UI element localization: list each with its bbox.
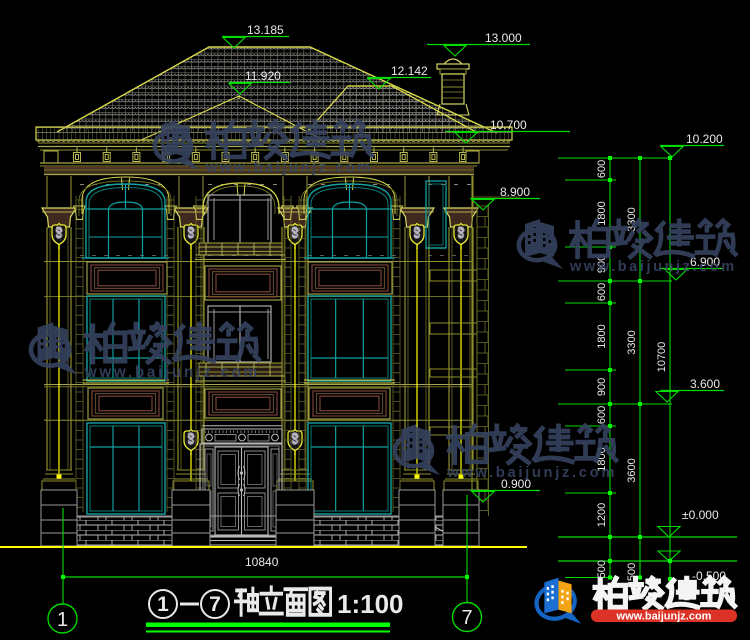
svg-text:13.185: 13.185: [247, 23, 284, 37]
svg-text:3600: 3600: [626, 458, 638, 482]
svg-text:www.baijunjz.com: www.baijunjz.com: [446, 465, 617, 481]
svg-text:www.baijunjz.com: www.baijunjz.com: [205, 160, 373, 176]
svg-text:1200: 1200: [596, 503, 608, 527]
svg-text:10.200: 10.200: [686, 132, 723, 146]
svg-text:10.700: 10.700: [490, 118, 527, 132]
svg-text:www.baijunjz.com: www.baijunjz.com: [616, 611, 712, 623]
svg-text:7: 7: [461, 607, 472, 629]
svg-text:12.142: 12.142: [391, 64, 428, 78]
svg-text:600: 600: [596, 406, 608, 424]
svg-text:1: 1: [157, 593, 169, 616]
svg-text:3300: 3300: [626, 330, 638, 354]
svg-text:600: 600: [596, 283, 608, 301]
svg-text:www.baijunjz.com: www.baijunjz.com: [84, 364, 260, 381]
svg-text:10700: 10700: [656, 342, 668, 373]
svg-text:1800: 1800: [596, 324, 608, 348]
svg-text:7: 7: [209, 593, 221, 616]
svg-text:900: 900: [596, 378, 608, 396]
svg-text:500: 500: [596, 560, 608, 578]
svg-text:www.baijunjz.com: www.baijunjz.com: [569, 259, 737, 275]
svg-text:11.920: 11.920: [245, 69, 281, 83]
svg-text:600: 600: [596, 160, 608, 178]
svg-text:3.600: 3.600: [690, 377, 720, 391]
svg-text:13.000: 13.000: [485, 31, 522, 45]
svg-text:1: 1: [57, 609, 68, 631]
svg-text:1:100: 1:100: [337, 589, 404, 619]
svg-text:±0.000: ±0.000: [682, 508, 719, 522]
svg-text:10840: 10840: [245, 555, 279, 569]
svg-text:8.900: 8.900: [500, 185, 530, 199]
